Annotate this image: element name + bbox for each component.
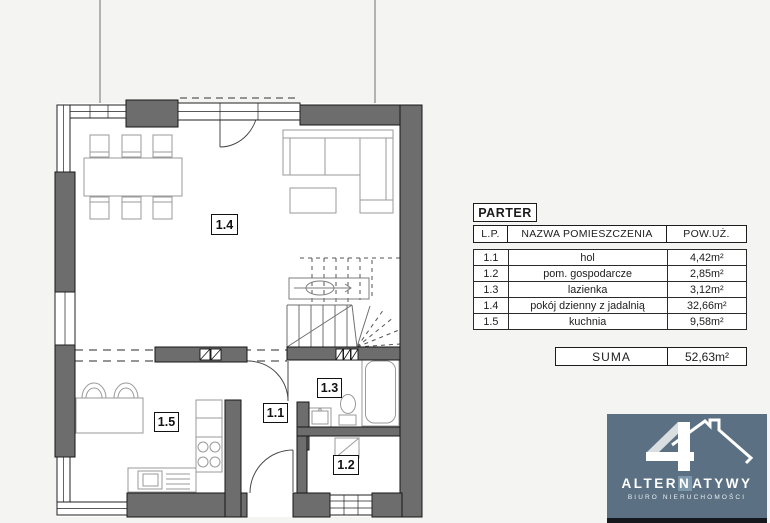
- reference-lines: [100, 0, 375, 110]
- logo-base-bar: [607, 518, 767, 523]
- utility-window: [330, 495, 372, 515]
- floorplan-page: 1.4 1.5 1.1 1.3 1.2 PARTER L.P. NAZWA PO…: [0, 0, 770, 523]
- room-label-kitchen: 1.5: [154, 412, 179, 432]
- room-label-living: 1.4: [211, 214, 238, 235]
- floor-title: PARTER: [473, 203, 537, 222]
- kitchen-table: [76, 398, 143, 433]
- cell-name: pom. gospodarcze: [508, 266, 667, 282]
- table-row: 1.1 hol 4,42m²: [474, 250, 747, 266]
- area-legend: PARTER L.P. NAZWA POMIESZCZENIA POW.UŻ. …: [473, 203, 747, 366]
- table-row: 1.4 pokój dzienny z jadalnią 32,66m²: [474, 298, 747, 314]
- legend-header-row: L.P. NAZWA POMIESZCZENIA POW.UŻ.: [473, 225, 747, 243]
- col-header-area: POW.UŻ.: [667, 226, 746, 242]
- room-label-bathroom: 1.3: [317, 378, 342, 398]
- sum-row: SUMA 52,63m²: [555, 347, 747, 366]
- cell-name: hol: [508, 250, 667, 266]
- dining-table-set: [84, 135, 182, 219]
- legend-table: 1.1 hol 4,42m² 1.2 pom. gospodarcze 2,85…: [473, 249, 747, 330]
- right-wall: [400, 105, 422, 517]
- cell-lp: 1.1: [474, 250, 509, 266]
- table-row: 1.5 kuchnia 9,58m²: [474, 314, 747, 330]
- table-row: 1.2 pom. gospodarcze 2,85m²: [474, 266, 747, 282]
- cell-name: lazienka: [508, 282, 667, 298]
- bathtub: [362, 358, 399, 426]
- kitchen-sink-counter: [128, 468, 196, 492]
- cell-area: 9,58m²: [667, 314, 747, 330]
- brand-text: ALTERNATYWY: [607, 477, 767, 491]
- room-label-utility: 1.2: [333, 455, 359, 475]
- sum-label: SUMA: [556, 348, 668, 365]
- numeral-4-stem: [678, 422, 690, 471]
- cell-lp: 1.3: [474, 282, 509, 298]
- cell-area: 32,66m²: [667, 298, 747, 314]
- cell-lp: 1.5: [474, 314, 509, 330]
- cell-lp: 1.4: [474, 298, 509, 314]
- brand-post: ATYWY: [692, 476, 752, 491]
- stove: [196, 437, 222, 472]
- brand-highlight-letter: N: [678, 476, 692, 491]
- brand-pre: ALTER: [622, 476, 679, 491]
- col-header-name: NAZWA POMIESZCZENIA: [508, 226, 667, 242]
- cell-name: pokój dzienny z jadalnią: [508, 298, 667, 314]
- table-row: 1.3 lazienka 3,12m²: [474, 282, 747, 298]
- logo-4-house-icon: [612, 418, 762, 476]
- washbasin: [309, 408, 331, 427]
- cell-area: 2,85m²: [667, 266, 747, 282]
- kitchen-tall-unit: [196, 400, 222, 418]
- cell-lp: 1.2: [474, 266, 509, 282]
- cell-name: kuchnia: [508, 314, 667, 330]
- left-wall: [55, 172, 75, 292]
- cell-area: 4,42m²: [667, 250, 747, 266]
- toilet: [339, 395, 356, 426]
- sum-value: 52,63m²: [668, 348, 746, 365]
- coffee-table: [290, 188, 336, 213]
- dining-table: [84, 158, 182, 196]
- agency-logo: ALTERNATYWY BIURO NIERUCHOMOŚCI: [607, 414, 767, 523]
- room-label-hall: 1.1: [263, 403, 288, 423]
- brand-subtitle: BIURO NIERUCHOMOŚCI: [607, 494, 767, 501]
- col-header-lp: L.P.: [474, 226, 508, 242]
- cell-area: 3,12m²: [667, 282, 747, 298]
